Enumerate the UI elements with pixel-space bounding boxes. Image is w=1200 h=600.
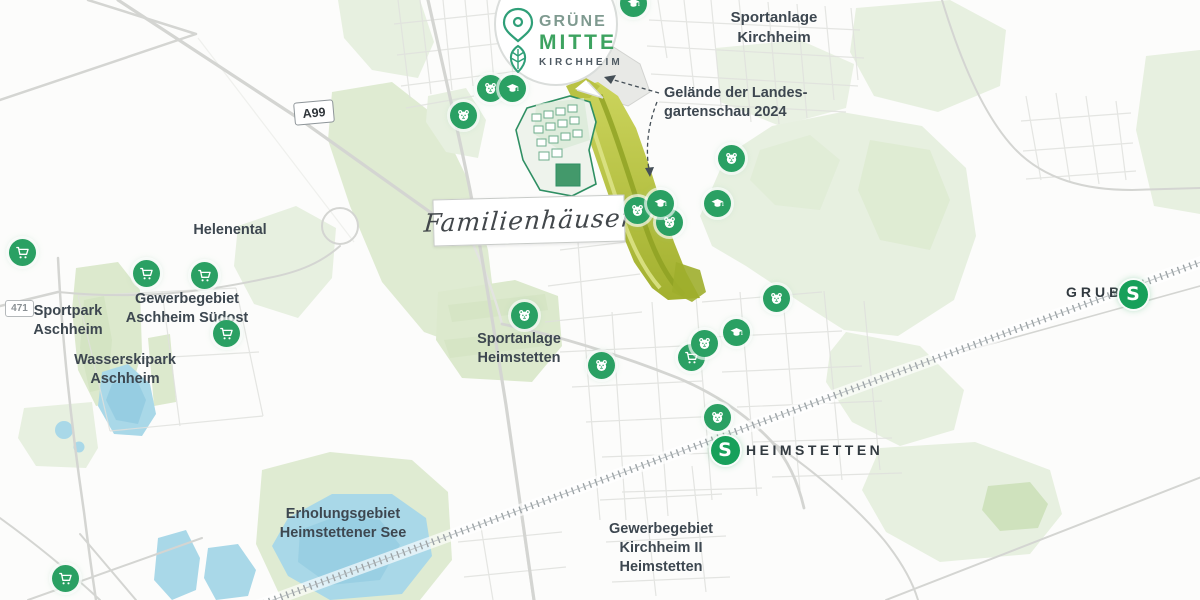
map-canvas: GRÜNE MITTE KIRCHHEIM Sportanlage Kirchh… bbox=[0, 0, 1200, 600]
road-badge-471: 471 bbox=[5, 300, 34, 317]
label-landesgartenschau: Gelände der Landes- gartenschau 2024 bbox=[664, 84, 807, 122]
label-wasserskipark-aschheim: Wasserskipark Aschheim bbox=[74, 351, 176, 388]
shopping-cart-icon[interactable] bbox=[133, 260, 160, 287]
road-badge-a99: A99 bbox=[293, 99, 335, 125]
shopping-cart-icon[interactable] bbox=[52, 565, 79, 592]
label-helenental: Helenental bbox=[193, 221, 266, 240]
bear-face-icon[interactable] bbox=[450, 102, 477, 129]
label-sportanlage-kirchheim: Sportanlage Kirchheim bbox=[731, 8, 818, 47]
bear-face-icon[interactable] bbox=[588, 352, 615, 379]
label-sportanlage-heimstetten: Sportanlage Heimstetten bbox=[477, 330, 561, 367]
label-erholungsgebiet: Erholungsgebiet Heimstettener See bbox=[280, 505, 407, 542]
shopping-cart-icon[interactable] bbox=[9, 239, 36, 266]
graduation-cap-icon[interactable] bbox=[499, 75, 526, 102]
bear-face-icon[interactable] bbox=[718, 145, 745, 172]
station-label-grub: GRUB bbox=[1066, 284, 1123, 300]
label-sportpark-aschheim: Sportpark Aschheim bbox=[33, 302, 102, 339]
graduation-cap-icon[interactable] bbox=[704, 190, 731, 217]
logo-text-mitte: MITTE bbox=[539, 31, 617, 55]
shopping-cart-icon[interactable] bbox=[213, 320, 240, 347]
graduation-cap-icon[interactable] bbox=[723, 319, 750, 346]
bear-face-icon[interactable] bbox=[511, 302, 538, 329]
logo-text-kirchheim: KIRCHHEIM bbox=[539, 57, 623, 68]
sbahn-logo-icon[interactable]: S bbox=[1119, 280, 1148, 309]
shopping-cart-icon[interactable] bbox=[191, 262, 218, 289]
graduation-cap-icon[interactable] bbox=[647, 190, 674, 217]
bear-face-icon[interactable] bbox=[691, 330, 718, 357]
bear-face-icon[interactable] bbox=[704, 404, 731, 431]
sbahn-logo-icon[interactable]: S bbox=[711, 436, 740, 465]
station-label-heimstetten: HEIMSTETTEN bbox=[746, 442, 883, 458]
familienhaeuser-callout: Familienhäuser bbox=[432, 194, 625, 246]
bear-face-icon[interactable] bbox=[763, 285, 790, 312]
label-gewerbegebiet-kirchheim: Gewerbegebiet Kirchheim II Heimstetten bbox=[609, 520, 713, 577]
logo-text-gruene: GRÜNE bbox=[539, 13, 607, 31]
